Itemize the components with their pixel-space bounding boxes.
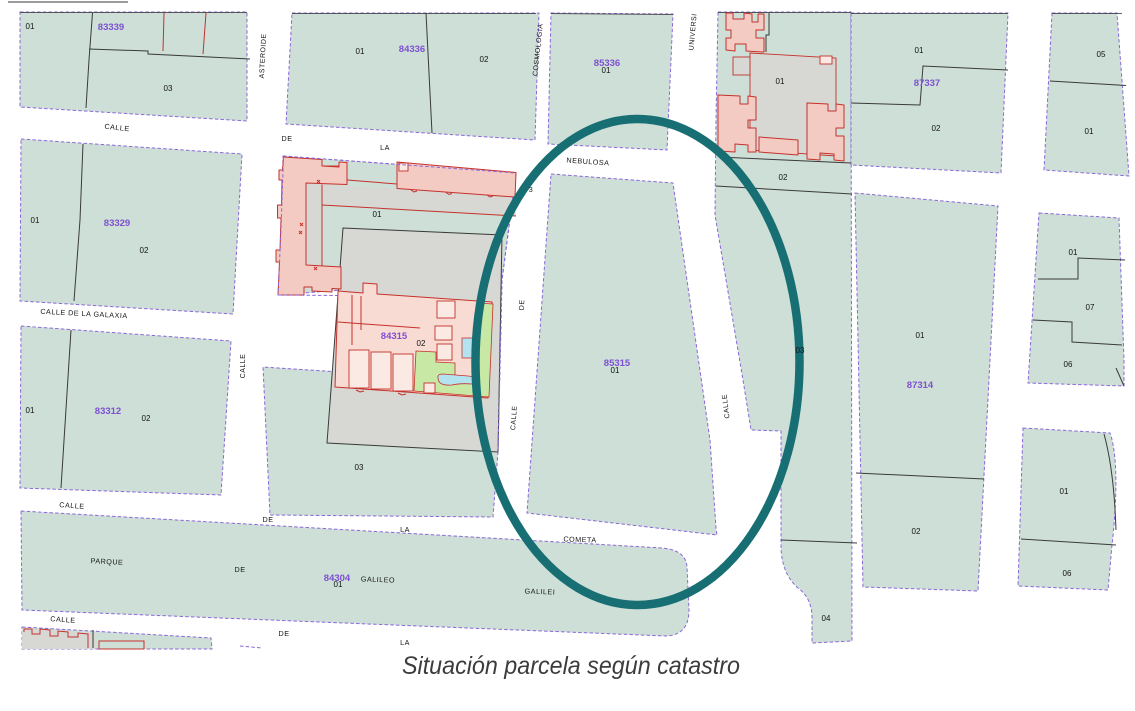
svg-text:02: 02 xyxy=(142,414,151,423)
svg-text:01: 01 xyxy=(776,77,785,86)
svg-text:83339: 83339 xyxy=(98,22,124,33)
svg-text:DE: DE xyxy=(519,299,527,310)
svg-text:84304: 84304 xyxy=(324,573,351,584)
svg-text:DE: DE xyxy=(279,629,290,638)
svg-text:02: 02 xyxy=(779,173,788,182)
svg-text:85315: 85315 xyxy=(604,358,631,369)
svg-text:02: 02 xyxy=(417,339,426,348)
svg-text:85336: 85336 xyxy=(594,58,620,69)
svg-text:DE: DE xyxy=(282,134,293,143)
svg-text:84336: 84336 xyxy=(399,44,425,55)
svg-text:04: 04 xyxy=(822,614,831,623)
svg-text:LA: LA xyxy=(380,143,390,152)
svg-text:02: 02 xyxy=(912,527,921,536)
svg-text:CALLE: CALLE xyxy=(50,614,76,625)
svg-text:01: 01 xyxy=(1060,487,1069,496)
svg-text:87314: 87314 xyxy=(907,380,934,391)
svg-text:LA: LA xyxy=(400,638,410,647)
svg-text:03: 03 xyxy=(355,463,364,472)
svg-text:CALLE: CALLE xyxy=(240,354,247,379)
svg-text:06: 06 xyxy=(1064,360,1073,369)
svg-text:LA: LA xyxy=(400,525,410,534)
svg-text:02: 02 xyxy=(480,55,489,64)
svg-text:01: 01 xyxy=(916,331,925,340)
svg-text:01: 01 xyxy=(1085,127,1094,136)
svg-text:03: 03 xyxy=(164,84,173,93)
svg-text:02: 02 xyxy=(140,246,149,255)
svg-text:Situación parcela según catast: Situación parcela según catastro xyxy=(402,652,740,680)
svg-text:DE: DE xyxy=(263,515,274,524)
svg-text:01: 01 xyxy=(31,216,40,225)
svg-text:05: 05 xyxy=(1097,50,1106,59)
svg-text:83329: 83329 xyxy=(104,218,130,229)
svg-text:CALLE: CALLE xyxy=(59,500,85,511)
svg-text:01: 01 xyxy=(1069,248,1078,257)
svg-text:01: 01 xyxy=(915,46,924,55)
svg-text:PARQUE: PARQUE xyxy=(90,556,123,567)
svg-text:01: 01 xyxy=(373,210,382,219)
svg-text:87337: 87337 xyxy=(914,78,940,89)
svg-text:84315: 84315 xyxy=(381,331,408,342)
svg-text:01: 01 xyxy=(26,406,35,415)
svg-text:83312: 83312 xyxy=(95,406,121,417)
svg-text:01: 01 xyxy=(26,22,35,31)
svg-text:01: 01 xyxy=(356,47,365,56)
svg-text:3: 3 xyxy=(529,185,534,194)
svg-text:06: 06 xyxy=(1063,569,1072,578)
svg-text:GALILEO: GALILEO xyxy=(361,574,396,584)
svg-text:GALILEI: GALILEI xyxy=(524,586,555,596)
svg-text:03: 03 xyxy=(796,346,805,355)
svg-text:DE: DE xyxy=(235,565,246,574)
svg-text:COMETA: COMETA xyxy=(563,534,597,544)
svg-text:07: 07 xyxy=(1086,303,1095,312)
svg-text:02: 02 xyxy=(932,124,941,133)
